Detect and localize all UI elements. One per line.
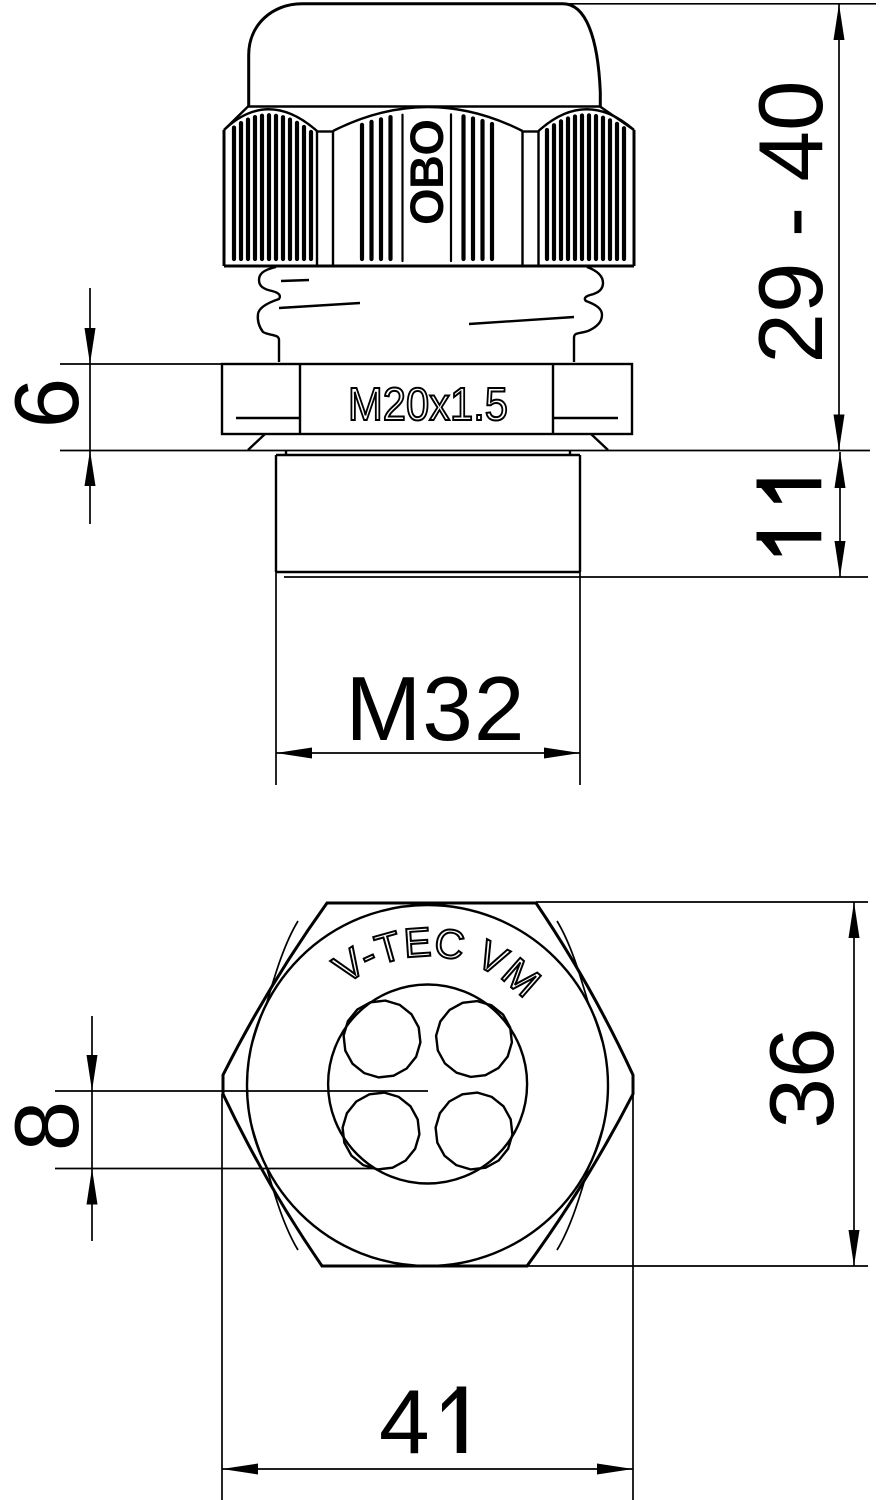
svg-text:M20x1.5: M20x1.5 xyxy=(348,378,508,430)
svg-text:8: 8 xyxy=(0,1101,98,1152)
svg-text:M32: M32 xyxy=(346,659,525,760)
svg-text:36: 36 xyxy=(752,1027,853,1128)
svg-text:4: 4 xyxy=(379,1372,430,1473)
svg-text:OBO: OBO xyxy=(400,119,453,225)
svg-text:6: 6 xyxy=(0,378,98,429)
svg-text:29 - 40: 29 - 40 xyxy=(741,80,842,363)
